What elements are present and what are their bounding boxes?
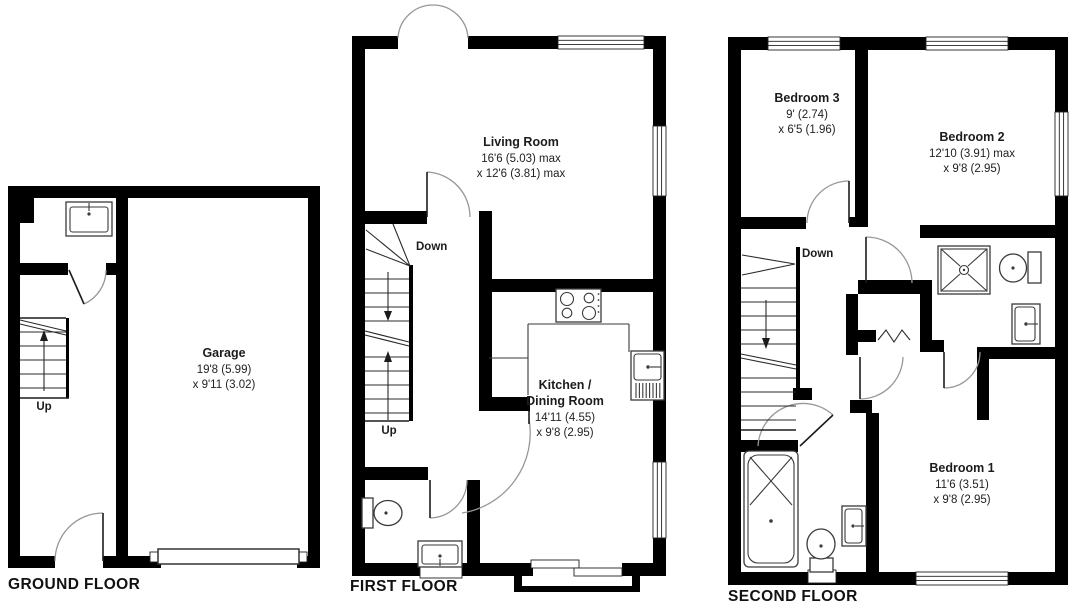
- first-floor-label: FIRST FLOOR: [350, 578, 458, 595]
- bath-icon: [744, 451, 798, 567]
- bedroom1-window: [916, 572, 1008, 585]
- bedroom1-name: Bedroom 1: [929, 461, 994, 475]
- wc-door: [430, 480, 467, 518]
- shower-room-toilet-icon: [1000, 252, 1042, 283]
- sink-icon: [66, 202, 112, 236]
- bedroom3-dim1: 9' (2.74): [786, 109, 828, 121]
- second-floor-plan: Bedroom 3 9' (2.74) x 6'5 (1.96) Bedroom…: [728, 37, 1068, 605]
- bedroom1-door: [860, 357, 903, 399]
- bathroom-toilet-icon: [807, 529, 836, 583]
- garage-dim1: 19'8 (5.99): [197, 364, 252, 376]
- floorplan-image: Up Garage 19'8 (5.99) x 9'11 (3.02) GROU…: [0, 0, 1072, 606]
- bedroom2-dim1: 12'10 (3.91) max: [929, 148, 1015, 160]
- bedroom3-name: Bedroom 3: [774, 91, 839, 105]
- ground-floor-plan: Up Garage 19'8 (5.99) x 9'11 (3.02) GROU…: [8, 186, 320, 593]
- second-stairs: [741, 255, 796, 430]
- bedroom2-door: [866, 237, 912, 283]
- first-floor-plan: Living Room 16'6 (5.03) max x 12'6 (3.81…: [350, 5, 666, 595]
- living-room-dim2: x 12'6 (3.81) max: [477, 168, 566, 180]
- floorplan-svg: Up Garage 19'8 (5.99) x 9'11 (3.02) GROU…: [0, 0, 1072, 606]
- bedroom1-dim1: 11'6 (3.51): [935, 479, 989, 491]
- bathroom-door: [758, 403, 833, 446]
- ground-floor-walls: [8, 186, 320, 568]
- kitchen-patio-door: [531, 560, 622, 576]
- first-stairs-down-label: Down: [416, 241, 447, 253]
- bedroom3-door: [807, 181, 849, 223]
- living-room-window-right: [653, 126, 666, 196]
- ground-stairs: [20, 318, 69, 398]
- shower-room-sink-icon: [1012, 304, 1040, 344]
- wc-toilet-icon: [362, 498, 402, 528]
- bedroom1-dim2: x 9'8 (2.95): [933, 494, 990, 506]
- front-door: [55, 513, 103, 561]
- ground-floor-label: GROUND FLOOR: [8, 576, 140, 593]
- cloakroom-door: [69, 270, 106, 304]
- kitchen-sink-icon: [631, 351, 664, 400]
- garage-name: Garage: [202, 346, 245, 360]
- garage-dim2: x 9'11 (3.02): [193, 379, 256, 391]
- ground-stairs-up-label: Up: [36, 401, 51, 413]
- second-stairs-down-label: Down: [802, 248, 833, 260]
- living-room-window-top: [558, 36, 644, 49]
- french-doors: [398, 5, 468, 38]
- kitchen-dim2: x 9'8 (2.95): [536, 427, 593, 439]
- living-room-door: [427, 172, 470, 217]
- first-stairs-up-label: Up: [381, 425, 396, 437]
- bedroom3-dim2: x 6'5 (1.96): [778, 124, 835, 136]
- bedroom2-dim2: x 9'8 (2.95): [943, 163, 1000, 175]
- bedroom2-name: Bedroom 2: [939, 130, 1004, 144]
- kitchen-name-line2: Dining Room: [526, 394, 604, 408]
- kitchen-dim1: 14'11 (4.55): [535, 412, 595, 424]
- first-stairs: [365, 224, 410, 421]
- kitchen-window-right: [653, 462, 666, 538]
- second-floor-label: SECOND FLOOR: [728, 588, 858, 605]
- bedroom2-window-right: [1055, 112, 1068, 196]
- bathroom-sink-icon: [842, 506, 866, 546]
- living-room-dim1: 16'6 (5.03) max: [481, 153, 561, 165]
- bedroom2-window-top: [926, 37, 1008, 50]
- kitchen-name-line1: Kitchen /: [539, 378, 592, 392]
- hob-icon: [556, 289, 601, 322]
- shower-icon: [938, 246, 990, 294]
- wc-sink-icon: [418, 541, 462, 578]
- bedroom3-window: [768, 37, 840, 50]
- shower-room-door: [944, 352, 980, 388]
- garage-door: [150, 549, 307, 564]
- living-room-name: Living Room: [483, 135, 559, 149]
- wall-break-symbol: [878, 330, 910, 342]
